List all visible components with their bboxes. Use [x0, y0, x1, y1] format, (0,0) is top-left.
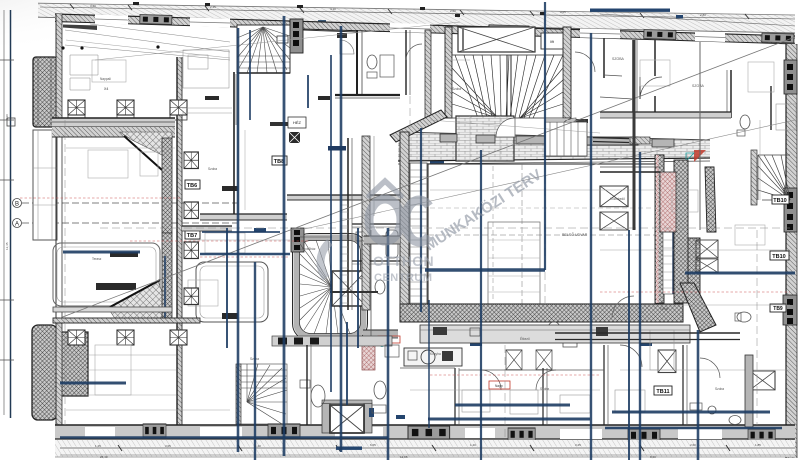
svg-text:Közlekedő: Közlekedő	[610, 197, 625, 201]
svg-text:HÉZ: HÉZ	[293, 120, 302, 125]
svg-text:TB7: TB7	[187, 233, 197, 239]
svg-text:Szoba: Szoba	[715, 387, 724, 391]
svg-text:1,85: 1,85	[755, 443, 761, 447]
svg-text:8,60: 8,60	[650, 455, 656, 459]
svg-text:A: A	[15, 222, 19, 228]
svg-text:TB9: TB9	[773, 306, 783, 312]
svg-text:3,05: 3,05	[165, 444, 171, 448]
svg-text:Étkező: Étkező	[520, 336, 530, 341]
svg-text:Nappali: Nappali	[100, 77, 111, 81]
svg-text:BELSŐ UDVAR: BELSŐ UDVAR	[562, 232, 588, 237]
svg-text:3,20: 3,20	[90, 4, 96, 8]
svg-text:2,60: 2,60	[450, 9, 456, 13]
svg-text:Szoba: Szoba	[540, 387, 549, 391]
svg-text:B: B	[15, 202, 19, 208]
svg-text:SZOBA: SZOBA	[692, 84, 705, 88]
svg-text:Lépcsőház: Lépcsőház	[300, 247, 316, 251]
svg-text:1,25: 1,25	[95, 444, 101, 448]
svg-text:12,45: 12,45	[5, 242, 9, 250]
svg-text:Terasz: Terasz	[92, 257, 102, 261]
svg-text:25,40: 25,40	[100, 455, 108, 459]
svg-text:TB10: TB10	[773, 198, 786, 204]
svg-text:SZOBA: SZOBA	[612, 57, 625, 61]
svg-text:3,25: 3,25	[575, 443, 581, 447]
svg-text:OTTHON: OTTHON	[373, 253, 434, 269]
svg-text:4,10: 4,10	[330, 7, 336, 11]
svg-text:Konyha: Konyha	[430, 352, 441, 356]
svg-text:1,40: 1,40	[255, 444, 261, 448]
svg-text:TB10: TB10	[772, 254, 785, 260]
svg-text:Szoba: Szoba	[208, 167, 217, 171]
svg-text:3,05: 3,05	[560, 10, 566, 14]
svg-text:TB6: TB6	[187, 183, 197, 189]
svg-text:Napp: Napp	[495, 384, 503, 388]
svg-text:2,45: 2,45	[210, 5, 216, 9]
svg-text:2,80: 2,80	[700, 13, 706, 17]
svg-text:Fürdő: Fürdő	[660, 307, 669, 311]
svg-text:CENTRUM: CENTRUM	[374, 272, 433, 284]
svg-text:8,20: 8,20	[5, 114, 9, 120]
svg-text:X4: X4	[104, 87, 108, 91]
svg-text:1,40: 1,40	[470, 443, 476, 447]
svg-text:TB11: TB11	[656, 389, 669, 395]
svg-text:6,05: 6,05	[370, 443, 376, 447]
svg-text:Szoba: Szoba	[452, 87, 461, 91]
svg-text:2,60: 2,60	[690, 443, 696, 447]
svg-text:12,05: 12,05	[400, 455, 408, 459]
